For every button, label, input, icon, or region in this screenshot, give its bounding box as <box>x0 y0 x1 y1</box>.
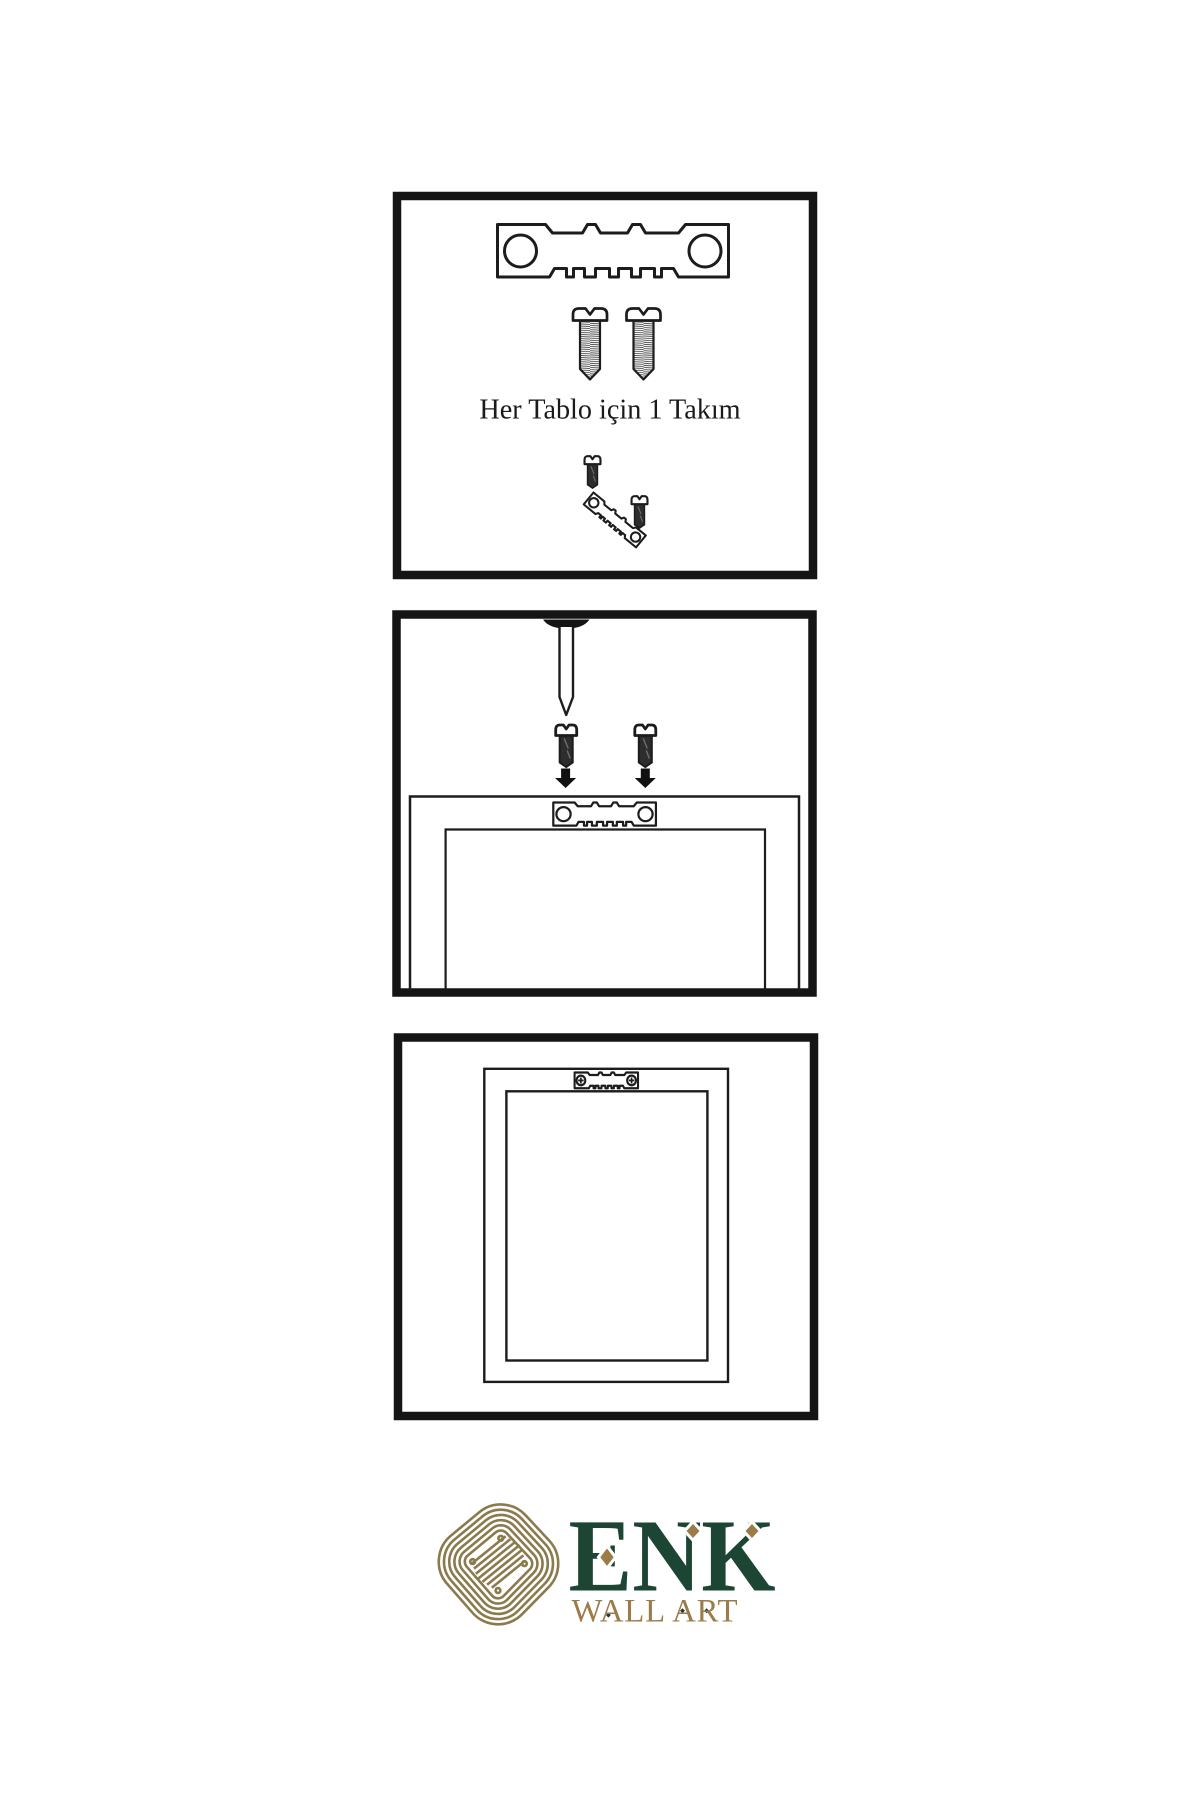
svg-text:Her Tablo için 1 Takım: Her Tablo için 1 Takım <box>479 395 740 426</box>
svg-text:WALL ART: WALL ART <box>572 1594 738 1630</box>
